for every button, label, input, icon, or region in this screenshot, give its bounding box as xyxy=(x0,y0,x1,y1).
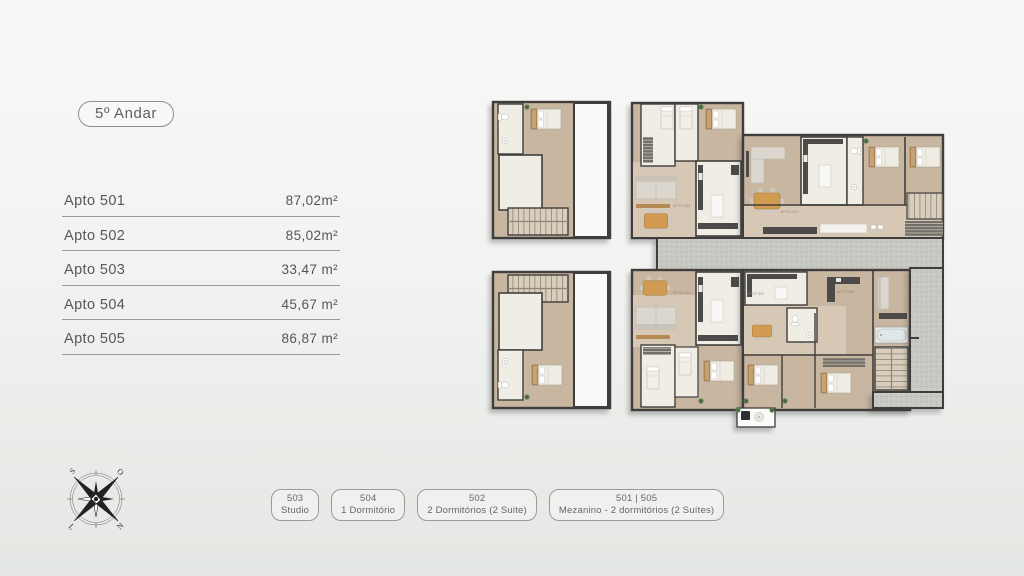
compass-letter-l: L xyxy=(67,522,77,532)
console-table xyxy=(636,204,670,208)
legend-unit-number: 503 xyxy=(281,493,309,505)
plant-icon xyxy=(782,398,787,403)
fridge-icon xyxy=(731,277,739,287)
hall-cabinet xyxy=(763,227,817,234)
room-label: APTO 505 xyxy=(837,290,855,294)
legend-button-503[interactable]: 503 Studio xyxy=(271,489,319,521)
hall-counter xyxy=(820,224,867,233)
dresser xyxy=(823,358,865,367)
apartment-area: 33,47 m² xyxy=(282,262,338,278)
stairs xyxy=(907,193,943,219)
legend-unit-number: 502 xyxy=(427,493,527,505)
apartment-area: 86,87 m² xyxy=(282,331,338,347)
legend-unit-type: 2 Dormitórios (2 Suite) xyxy=(427,505,527,517)
round-table-icon xyxy=(755,413,764,422)
unit-bottom-left xyxy=(493,272,610,408)
plant-icon xyxy=(524,394,529,399)
single-bed-icon xyxy=(679,353,691,375)
legend-unit-type: Mezanino - 2 dormitórios (2 Suítes) xyxy=(559,505,714,517)
grill-icon xyxy=(741,411,750,420)
unit-top-right: APTO 501 xyxy=(743,135,943,238)
toilet-icon xyxy=(792,315,799,326)
apartment-row-503: Apto 503 33,47 m² xyxy=(62,262,340,286)
room xyxy=(499,155,542,210)
bed-icon xyxy=(910,147,940,167)
bed-icon xyxy=(706,109,736,129)
sink-icon xyxy=(502,138,507,143)
apartment-label: Apto 504 xyxy=(64,297,125,313)
slide-background: 5º Andar Apto 501 87,02m² Apto 502 85,02… xyxy=(0,0,1024,576)
floor-badge: 5º Andar xyxy=(78,101,174,127)
floor-plan: APTO 505 xyxy=(485,95,955,445)
plant-icon xyxy=(698,398,703,403)
plant-icon xyxy=(698,104,703,109)
mezzanine-void xyxy=(574,103,608,237)
bed-icon xyxy=(531,109,561,129)
bathtub-icon xyxy=(875,327,908,343)
fridge-icon xyxy=(731,165,739,175)
legend-button-502[interactable]: 502 2 Dormitórios (2 Suite) xyxy=(417,489,537,521)
room xyxy=(499,293,542,350)
unit-top-middle: APTO 505 xyxy=(632,103,743,238)
kitchen-counter xyxy=(698,165,703,210)
legend-unit-type: 1 Dormitório xyxy=(341,505,395,517)
closet xyxy=(643,137,653,163)
room-label: APTO 504 xyxy=(673,291,691,295)
balcony xyxy=(735,407,775,427)
bed-icon xyxy=(704,361,734,381)
legend-unit-type: Studio xyxy=(281,505,309,517)
legend-button-504[interactable]: 504 1 Dormitório xyxy=(331,489,405,521)
unit-type-legend: 503 Studio 504 1 Dormitório 502 2 Dormit… xyxy=(271,489,724,521)
legend-button-501-505[interactable]: 501 | 505 Mezanino - 2 dormitórios (2 Su… xyxy=(549,489,724,521)
toilet-icon xyxy=(498,382,509,389)
compass-letter-s: S xyxy=(68,466,78,476)
room-label: APTO 505 xyxy=(673,204,691,208)
mezzanine-void xyxy=(574,273,608,407)
tv-panel xyxy=(746,151,749,177)
bathroom xyxy=(498,350,523,400)
unit-bottom-middle: APTO 504 xyxy=(632,270,743,410)
compass-letter-n: N xyxy=(115,521,126,532)
apartment-area: 85,02m² xyxy=(286,228,338,244)
sofa-icon xyxy=(877,277,889,309)
single-bed-icon xyxy=(647,367,659,389)
toilet-icon xyxy=(498,114,509,121)
compass-rose-icon: S O L N xyxy=(58,461,134,537)
plant-icon xyxy=(769,407,774,412)
sink-icon xyxy=(851,184,856,189)
sink-icon xyxy=(502,358,507,363)
legend-unit-number: 504 xyxy=(341,493,395,505)
bed-icon xyxy=(821,373,851,393)
legend-unit-number: 501 | 505 xyxy=(559,493,714,505)
toilet-icon xyxy=(850,148,861,155)
terrace-corridor xyxy=(657,238,943,271)
bathroom xyxy=(847,137,863,205)
apartment-area: 87,02m² xyxy=(286,193,338,209)
room-label: APTO 502 xyxy=(747,292,765,296)
plant-icon xyxy=(743,398,748,403)
sofa-icon xyxy=(636,307,676,329)
bathroom xyxy=(498,104,523,154)
sink-icon xyxy=(806,332,811,337)
plant-icon xyxy=(735,407,740,412)
apartment-row-501: Apto 501 87,02m² xyxy=(62,193,340,217)
apartment-label: Apto 503 xyxy=(64,262,125,278)
single-bed-icon xyxy=(680,107,692,129)
kitchenette xyxy=(879,313,907,319)
apartment-row-505: Apto 505 86,87 m² xyxy=(62,331,340,355)
unit-bottom-right: APTO 502 APTO 505 xyxy=(743,270,910,410)
shelving xyxy=(905,221,943,236)
plant-icon xyxy=(524,104,529,109)
kitchen-counter xyxy=(827,277,860,284)
bed-icon xyxy=(748,365,778,385)
bed-icon xyxy=(532,365,562,385)
apartment-label: Apto 505 xyxy=(64,331,125,347)
apartment-row-504: Apto 504 45,67 m² xyxy=(62,297,340,321)
compass-center xyxy=(94,497,98,501)
console-table xyxy=(636,335,670,339)
bed-icon xyxy=(869,147,899,167)
single-bed-icon xyxy=(661,107,673,129)
apartment-label: Apto 501 xyxy=(64,193,125,209)
room-label: APTO 501 xyxy=(781,210,799,214)
kitchen-island xyxy=(711,195,723,217)
unit-top-left xyxy=(493,102,610,238)
apartment-area: 45,67 m² xyxy=(282,297,338,313)
wardrobe xyxy=(643,347,671,355)
apartment-list: Apto 501 87,02m² Apto 502 85,02m² Apto 5… xyxy=(62,193,340,366)
plant-icon xyxy=(863,138,868,143)
compass-letter-o: O xyxy=(115,467,126,478)
sofa-icon xyxy=(636,177,676,199)
apartment-label: Apto 502 xyxy=(64,228,125,244)
apartment-row-502: Apto 502 85,02m² xyxy=(62,228,340,252)
